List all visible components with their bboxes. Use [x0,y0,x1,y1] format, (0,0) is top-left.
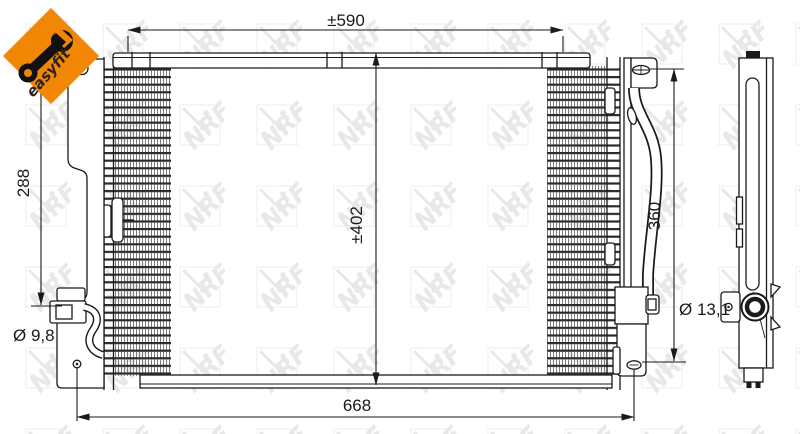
dim-label-left-mount-span: 288 [14,169,33,197]
right-fin-block [547,57,620,390]
dim-label-overall-width: 668 [343,396,371,415]
left-fin-block [102,57,171,390]
core-top-plate [113,52,590,69]
dim-label-top-width: ±590 [327,11,365,30]
drawing-page: NRF [0,0,800,434]
technical-drawing: NRF [0,0,800,434]
dim-label-right-mount-span: 360 [645,202,664,230]
side-bottom-block [744,368,763,382]
left-connector-tab [57,288,85,301]
side-tab-lower [737,229,743,247]
side-top-cap [746,51,760,58]
dim-label-core-height: ±402 [347,206,366,244]
side-tab-upper [737,197,743,224]
label-port-diameter: Ø 13,1 [679,300,730,319]
right-connector-block [615,287,648,324]
label-left-hole-diameter: Ø 9,8 [13,326,55,345]
side-body [739,58,773,368]
side-foot-right [756,382,761,388]
side-foot-left [747,382,752,388]
left-core-clip [112,198,123,242]
right-tube-stub-mid [605,243,615,265]
right-tube-stub-top [605,88,615,114]
